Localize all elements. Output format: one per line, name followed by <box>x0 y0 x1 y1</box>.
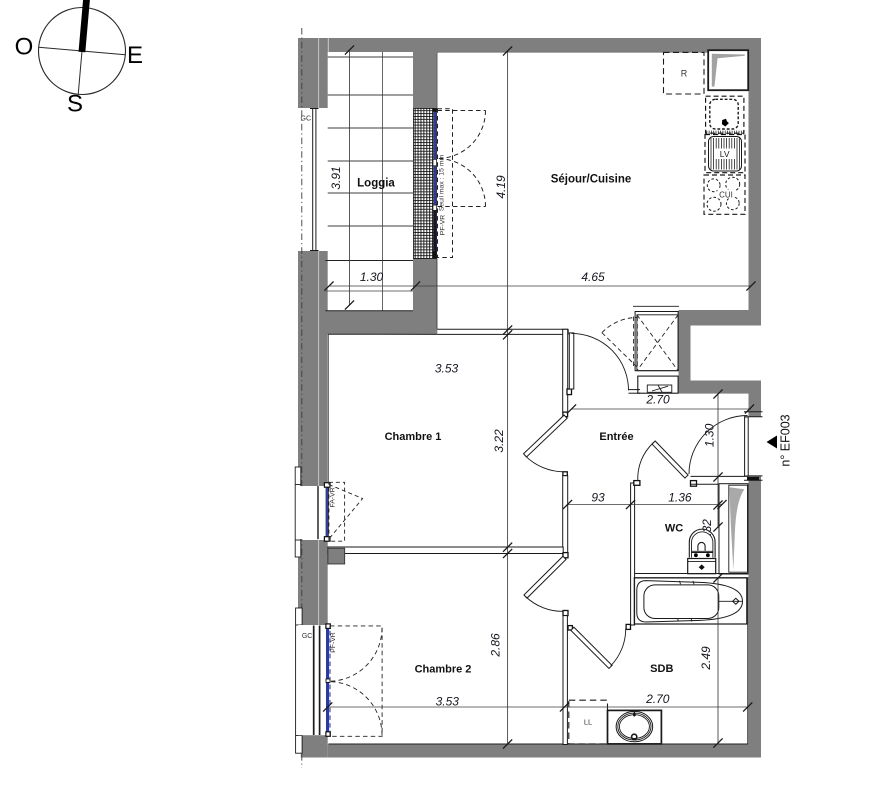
svg-text:93: 93 <box>591 490 605 504</box>
svg-text:S: S <box>67 91 83 118</box>
svg-text:Loggia: Loggia <box>357 178 395 190</box>
svg-text:CUI: CUI <box>719 190 733 199</box>
svg-text:4.65: 4.65 <box>581 270 605 284</box>
svg-text:2.70: 2.70 <box>645 692 670 706</box>
svg-text:LV: LV <box>720 149 730 159</box>
svg-text:2.86: 2.86 <box>489 633 503 658</box>
svg-text:3.53: 3.53 <box>436 694 460 708</box>
svg-text:.32: .32 <box>700 519 714 536</box>
svg-text:Séjour/Cuisine: Séjour/Cuisine <box>551 174 632 186</box>
svg-text:O: O <box>15 34 34 61</box>
svg-text:FA-VR: FA-VR <box>330 487 337 507</box>
svg-text:LL: LL <box>584 718 592 727</box>
svg-text:SDB: SDB <box>650 663 673 675</box>
svg-text:GC: GC <box>302 633 313 640</box>
svg-text:n° EF003: n° EF003 <box>779 414 793 466</box>
svg-text:2.70: 2.70 <box>645 393 670 407</box>
svg-text:3.53: 3.53 <box>435 362 459 376</box>
svg-text:4.19: 4.19 <box>494 175 508 199</box>
svg-text:Entrée: Entrée <box>599 431 633 443</box>
svg-text:E: E <box>127 42 143 69</box>
svg-text:PF-VR: PF-VR <box>330 632 337 652</box>
svg-text:1.30: 1.30 <box>360 270 384 284</box>
svg-text:1.30: 1.30 <box>703 423 717 447</box>
svg-text:Seuil max : 15 mm: Seuil max : 15 mm <box>439 155 446 212</box>
svg-text:3.91: 3.91 <box>329 166 343 189</box>
svg-text:Chambre 2: Chambre 2 <box>415 663 472 675</box>
svg-text:2.49: 2.49 <box>699 646 713 671</box>
svg-text:1.36: 1.36 <box>668 490 692 504</box>
svg-text:R: R <box>681 69 688 79</box>
svg-text:3.22: 3.22 <box>492 429 506 453</box>
svg-text:Chambre 1: Chambre 1 <box>385 431 442 443</box>
svg-text:WC: WC <box>665 522 683 534</box>
svg-text:PF-VR: PF-VR <box>440 215 447 235</box>
